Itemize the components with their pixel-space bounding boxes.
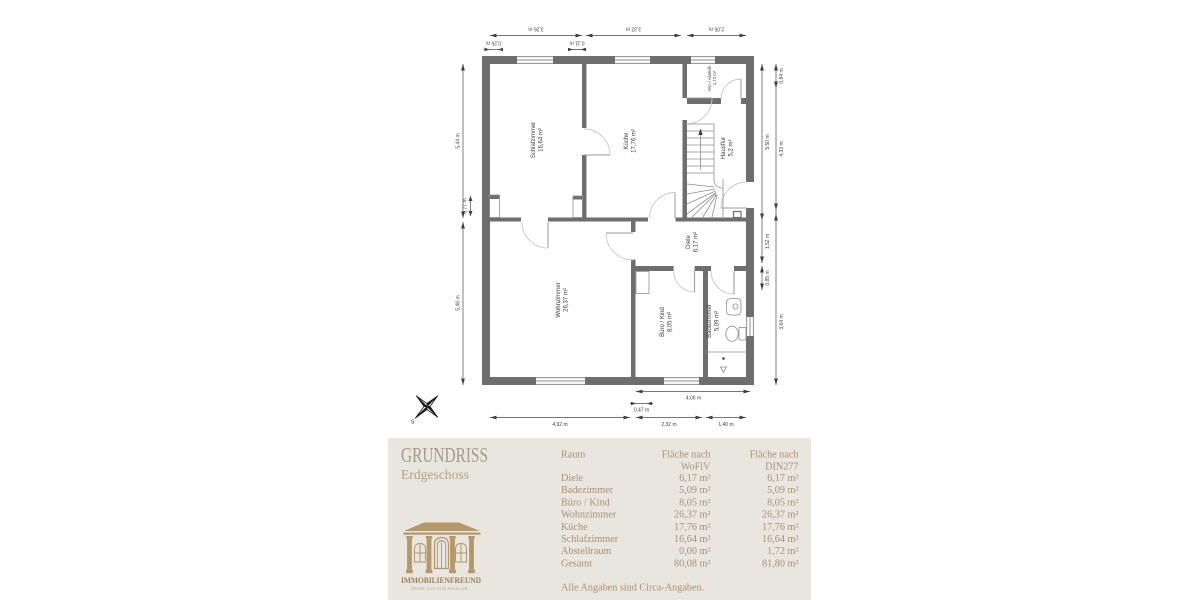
svg-text:WoFlV: WoFlV	[681, 461, 711, 472]
svg-text:2,32 m: 2,32 m	[661, 422, 676, 428]
svg-text:Wohnzimmer26,37 m²: Wohnzimmer26,37 m²	[556, 282, 570, 317]
svg-text:3,32 m: 3,32 m	[626, 26, 641, 32]
svg-text:5,48 m: 5,48 m	[456, 295, 462, 310]
svg-text:GRUNDRISS: GRUNDRISS	[401, 443, 488, 467]
svg-text:0,11 m: 0,11 m	[570, 40, 585, 46]
svg-text:Fläche nach: Fläche nach	[662, 449, 711, 460]
svg-text:Büro / Kind8,05 m²: Büro / Kind8,05 m²	[660, 307, 674, 337]
svg-text:4,92 m: 4,92 m	[552, 422, 567, 428]
svg-text:5,09 m²: 5,09 m²	[767, 485, 798, 496]
svg-text:DIN277: DIN277	[765, 461, 798, 472]
svg-text:16,64 m²: 16,64 m²	[674, 534, 710, 545]
svg-text:MEHR ALS NUR MAKLER: MEHR ALS NUR MAKLER	[411, 586, 469, 591]
svg-text:5,50 m: 5,50 m	[765, 134, 771, 149]
svg-text:0,25 m: 0,25 m	[486, 40, 501, 46]
svg-text:IMMOBILIENFREUND: IMMOBILIENFREUND	[401, 576, 481, 585]
svg-text:3,26 m: 3,26 m	[528, 26, 543, 32]
svg-text:1,72 m²: 1,72 m²	[767, 546, 798, 557]
svg-text:26,37 m²: 26,37 m²	[674, 510, 710, 521]
svg-text:Hausflur5,2 m²: Hausflur5,2 m²	[721, 137, 735, 159]
svg-text:8,05 m²: 8,05 m²	[767, 497, 798, 508]
svg-text:4,33 m: 4,33 m	[779, 141, 785, 156]
svg-text:Küche17,76 m²: Küche17,76 m²	[624, 129, 638, 153]
svg-text:Büro / Kind: Büro / Kind	[561, 497, 610, 508]
svg-text:6,17 m²: 6,17 m²	[767, 473, 798, 484]
svg-text:16,64 m²: 16,64 m²	[762, 534, 798, 545]
svg-text:Fläche nach: Fläche nach	[750, 449, 799, 460]
svg-text:6,17 m²: 6,17 m²	[679, 473, 710, 484]
svg-text:0,00 m²: 0,00 m²	[679, 546, 710, 557]
svg-text:Wohnzimmer: Wohnzimmer	[561, 510, 617, 521]
svg-text:Badezimmer: Badezimmer	[561, 485, 614, 496]
svg-text:0,77 m: 0,77 m	[463, 198, 469, 213]
svg-text:4,06 m: 4,06 m	[686, 396, 701, 402]
svg-text:2,05 m: 2,05 m	[709, 26, 724, 32]
svg-text:0,47 m: 0,47 m	[634, 408, 649, 414]
svg-text:8,05 m²: 8,05 m²	[679, 497, 710, 508]
svg-text:S: S	[411, 420, 415, 426]
svg-text:Gesamt: Gesamt	[561, 558, 592, 569]
svg-text:80,08 m²: 80,08 m²	[674, 558, 710, 569]
svg-text:17,76 m²: 17,76 m²	[762, 522, 798, 533]
svg-text:0,84 m: 0,84 m	[779, 68, 785, 83]
svg-text:Raum: Raum	[561, 449, 585, 460]
svg-text:81,80 m²: 81,80 m²	[762, 558, 798, 569]
svg-text:Alle Angaben sind Circa-Angabe: Alle Angaben sind Circa-Angaben.	[561, 583, 704, 594]
svg-text:3,64 m: 3,64 m	[779, 314, 785, 329]
svg-text:Erdgeschoss: Erdgeschoss	[401, 467, 469, 482]
svg-text:0,85 m: 0,85 m	[765, 270, 771, 285]
svg-text:5,09 m²: 5,09 m²	[679, 485, 710, 496]
svg-text:5,44 m: 5,44 m	[456, 133, 462, 148]
svg-text:Schlafzimmer: Schlafzimmer	[561, 534, 619, 545]
svg-text:Küche: Küche	[561, 522, 588, 533]
svg-text:WC-/ Abstellr.1,72 m²: WC-/ Abstellr.1,72 m²	[707, 65, 717, 91]
svg-text:Abstellraum: Abstellraum	[561, 546, 611, 557]
svg-text:Badezimmer5,09 m²: Badezimmer5,09 m²	[707, 304, 721, 338]
svg-text:1,40 m: 1,40 m	[718, 422, 733, 428]
svg-text:1,52 m: 1,52 m	[765, 234, 771, 249]
svg-text:Schlafzimmer16,64 m²: Schlafzimmer16,64 m²	[531, 122, 545, 158]
svg-text:17,76 m²: 17,76 m²	[674, 522, 710, 533]
svg-text:Diele: Diele	[561, 473, 584, 484]
svg-text:Diele6,17 m²: Diele6,17 m²	[686, 232, 700, 252]
svg-text:26,37 m²: 26,37 m²	[762, 510, 798, 521]
